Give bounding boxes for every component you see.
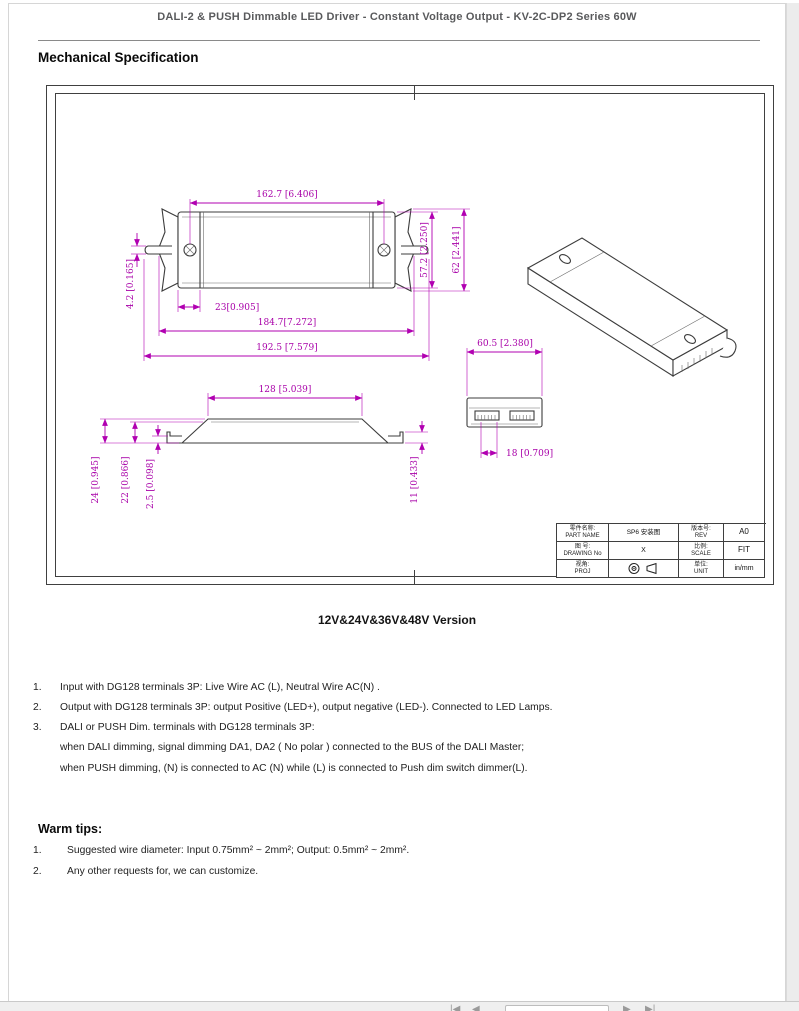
proj-label: 视角: PROJ (557, 560, 609, 578)
dim-overall-width: 62 [2.441] (452, 226, 462, 273)
first-page-button[interactable]: |◀ (450, 1005, 460, 1011)
device-body-side-view (182, 419, 388, 443)
dim-screw-span: 162.7 [6.406] (256, 190, 317, 200)
rev-label: 版本号: REV (679, 524, 724, 542)
dim-end-width: 60.5 [2.380] (477, 339, 533, 349)
note-text: when DALI dimming, signal dimming DA1, D… (60, 742, 524, 753)
viewer-right-gutter (786, 3, 799, 1001)
side-left-ear (167, 432, 182, 443)
mechanical-drawing: 162.7 [6.406] 57.2 [2.250] 62 [2.441] 4.… (45, 86, 775, 585)
side-right-ear (388, 432, 403, 443)
note-number: 3. (33, 722, 55, 733)
first-angle-projection-icon (609, 560, 679, 578)
next-page-button[interactable]: ▶ (623, 1005, 631, 1011)
screw-right (378, 244, 390, 256)
document-header-title: DALI-2 & PUSH Dimmable LED Driver - Cons… (8, 11, 786, 23)
note-text: Output with DG128 terminals 3P: output P… (60, 702, 553, 713)
warm-tips-title: Warm tips: (38, 822, 102, 836)
drawing-no-label: 图 号: DRAWING No (557, 542, 609, 560)
tip-number: 1. (33, 845, 55, 856)
note-number: 2. (33, 702, 55, 713)
dim-ear-thickness: 2.5 [0.098] (146, 459, 156, 509)
title-block: 零件名称: PART NAME SP6 安装图 版本号: REV A0 图 号:… (556, 523, 766, 578)
dim-endcap: 23[0.905] (215, 303, 259, 313)
dim-end-height: 11 [0.433] (410, 456, 420, 503)
scale-label: 比例: SCALE (679, 542, 724, 560)
dim-terminal: 18 [0.709] (506, 449, 553, 459)
unit-value: in/mm (724, 560, 765, 578)
dim-slot: 4.2 [0.165] (126, 259, 136, 309)
isometric-view (528, 238, 736, 376)
part-name-label: 零件名称: PART NAME (557, 524, 609, 542)
note-number: 1. (33, 682, 55, 693)
tip-text: Suggested wire diameter: Input 0.75mm² ~… (67, 845, 409, 856)
dim-ear-span: 184.7[7.272] (258, 318, 317, 328)
scale-value: FIT (724, 542, 765, 560)
unit-label: 单位: UNIT (679, 560, 724, 578)
note-text: when PUSH dimming, (N) is connected to A… (60, 763, 528, 774)
tip-number: 2. (33, 866, 55, 877)
part-name-value: SP6 安装图 (609, 524, 679, 542)
rev-value: A0 (724, 524, 765, 542)
side-view: 128 [5.039] 24 [0.945] 22 [0.866] 2.5 [0… (91, 385, 428, 509)
tip-text: Any other requests for, we can customize… (67, 866, 258, 877)
dim-top-length: 128 [5.039] (259, 385, 312, 395)
screw-left (184, 244, 196, 256)
section-title: Mechanical Specification (38, 50, 199, 65)
page-number-input[interactable] (505, 1005, 609, 1011)
top-view: 162.7 [6.406] 57.2 [2.250] 62 [2.441] 4.… (126, 190, 470, 361)
dim-height-body: 22 [0.866] (121, 456, 131, 503)
terminal-block-left (475, 411, 499, 420)
left-slot (145, 246, 172, 254)
dim-height-overall: 24 [0.945] (91, 456, 101, 503)
dim-body-width: 57.2 [2.250] (420, 222, 430, 278)
document-page: { "colors": { "dimension_accent": "#b100… (0, 0, 799, 1011)
last-page-button[interactable]: ▶| (645, 1005, 655, 1011)
note-text: Input with DG128 terminals 3P: Live Wire… (60, 682, 380, 693)
viewer-toolbar: |◀ ◀ ▶ ▶| (0, 1001, 799, 1011)
device-body-top-view (178, 212, 395, 288)
dim-overall-length: 192.5 [7.579] (256, 343, 317, 353)
terminal-block-right (510, 411, 534, 420)
header-divider (38, 40, 760, 41)
end-view: 60.5 [2.380] 18 [0.709] (467, 339, 553, 459)
version-label: 12V&24V&36V&48V Version (8, 613, 786, 627)
drawing-no-value: X (609, 542, 679, 560)
previous-page-button[interactable]: ◀ (472, 1005, 480, 1011)
note-text: DALI or PUSH Dim. terminals with DG128 t… (60, 722, 315, 733)
